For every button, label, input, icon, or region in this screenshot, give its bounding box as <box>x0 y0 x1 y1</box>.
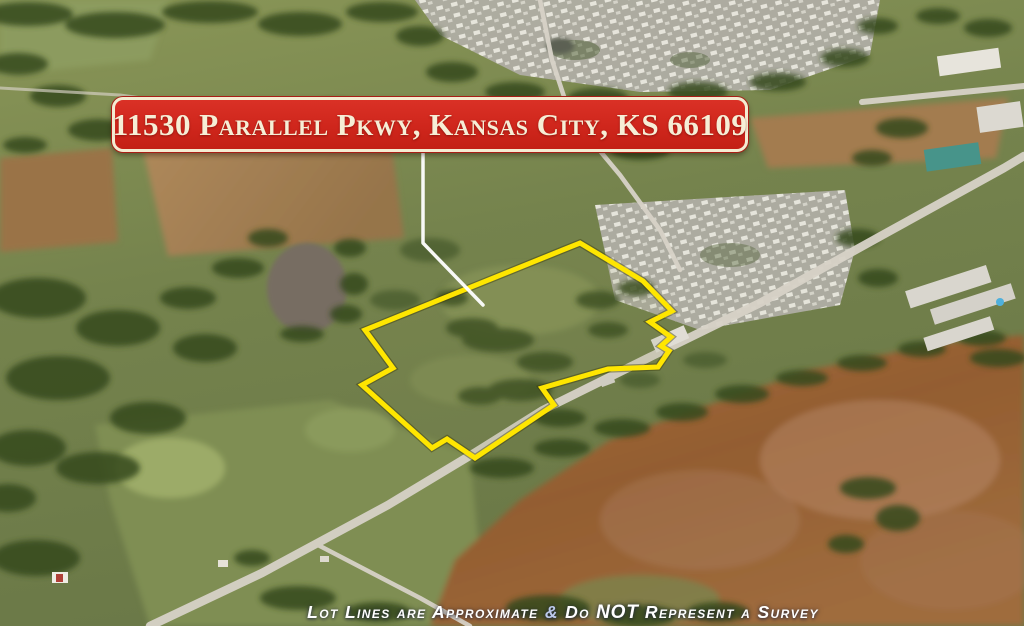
disclaimer-ampersand: & <box>545 602 559 622</box>
disclaimer-text-3: Represent a Survey <box>639 602 819 622</box>
aerial-photo <box>0 0 1024 626</box>
disclaimer-text-1: Lot Lines are Approximate <box>307 602 545 622</box>
address-banner: 11530 Parallel Pkwy, Kansas City, KS 661… <box>112 97 748 152</box>
disclaimer-text-2: Do <box>559 602 596 622</box>
pool <box>996 298 1004 306</box>
disclaimer-not: NOT <box>596 602 639 623</box>
address-text: 11530 Parallel Pkwy, Kansas City, KS 661… <box>113 109 748 140</box>
listing-photo: 11530 Parallel Pkwy, Kansas City, KS 661… <box>0 0 1024 626</box>
disclaimer: Lot Lines are Approximate & Do NOT Repre… <box>278 602 848 624</box>
